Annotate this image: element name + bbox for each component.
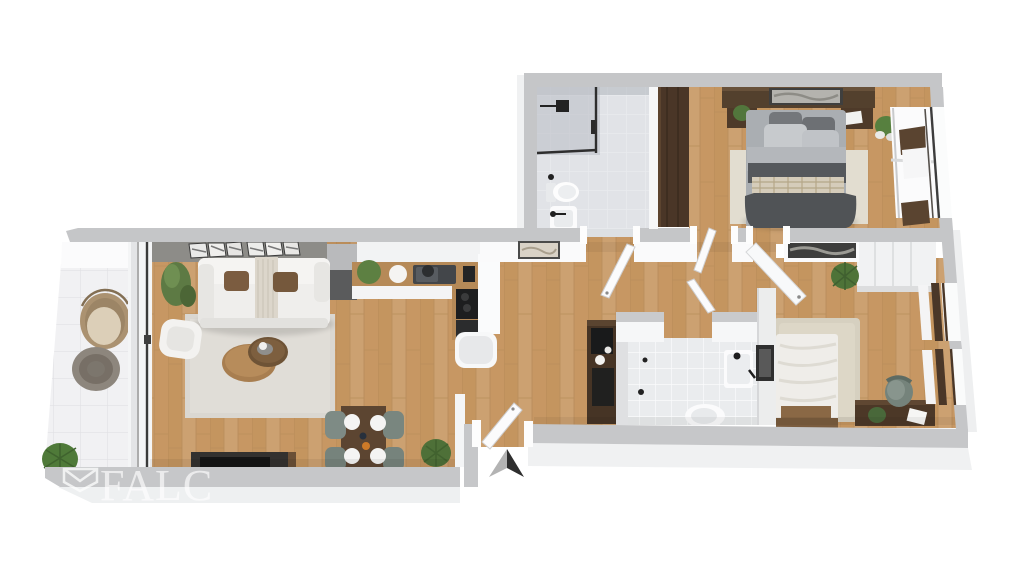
svg-text:FALC: FALC: [100, 461, 213, 510]
